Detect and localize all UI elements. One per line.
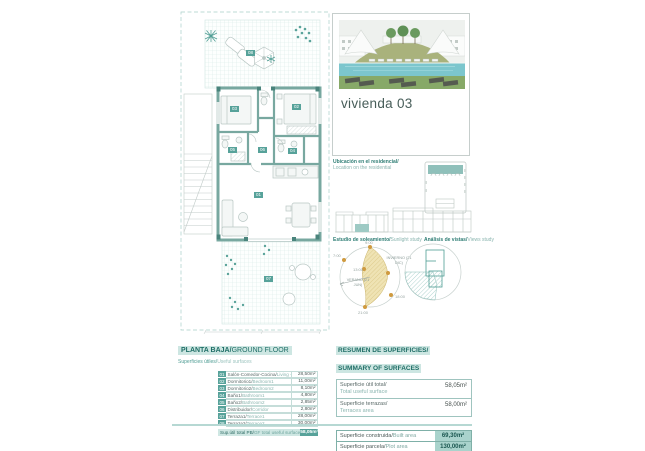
terrace1-area (222, 240, 320, 324)
table-row: 01 Salón-Comedor-Cocina/Living - Kitchen… (218, 371, 318, 378)
room-label-en: Bedroom2 (253, 386, 274, 391)
views-diagram (404, 241, 464, 305)
unit-location-highlight (428, 165, 463, 174)
sun-path-drawing (332, 240, 412, 320)
room-label-es: Dormitorio1/ (228, 379, 253, 384)
room-chip-terrace2: 08 (246, 50, 255, 56)
room-areas-table: 01 Salón-Comedor-Cocina/Living - Kitchen… (218, 371, 318, 436)
summary-total-row: Superficie parcela/Plot area 130,00m² (337, 441, 471, 451)
room-chip-bath2: 05 (228, 147, 237, 153)
residential-render-image (339, 20, 465, 89)
total-label-es: Sup.útil total PB/ (220, 430, 254, 435)
wc-fixtures-icon (261, 93, 268, 105)
hour-label: 13:00 (353, 267, 363, 272)
room-label-en: Living - Kitchen (277, 372, 292, 377)
views-caption-en: Views study (467, 237, 494, 243)
room-area-value: 2,80m² (292, 406, 318, 413)
ground-floor-title: PLANTA BAJA/GROUND FLOOR (178, 346, 292, 355)
location-note: Ubicación en el residencial/ Location on… (333, 159, 428, 171)
total-row-label-en: Built area (393, 433, 416, 439)
room-chip-bedroom2: 03 (230, 106, 239, 112)
summary-row: Superficie útil total/ Total useful surf… (337, 380, 471, 398)
room-chip-corridor: 06 (258, 147, 267, 153)
room-number-badge: 05 (218, 399, 226, 406)
ground-floor-title-en: GROUND FLOOR (232, 347, 289, 354)
stairs (184, 94, 212, 234)
summary-row: Superficie terrazas/ Terraces area 58,00… (337, 398, 471, 416)
room-area-value: 11,00m² (292, 378, 318, 385)
room-label-en: Bathroom2 (242, 400, 264, 405)
total-row-label-en: Plot area (386, 444, 408, 450)
dwelling-title: vivienda 03 (341, 96, 413, 111)
room-chip-terrace1: 07 (264, 276, 273, 282)
ground-floor-subtitle-en: Useful surfaces (217, 359, 251, 365)
sunlight-diagram: 7:00 9:00 13:00 18:00 21:00 VERANO (21 J… (332, 240, 412, 320)
kitchen-counter-icon (273, 166, 318, 178)
summary-totals-box: Superficie construida/Built area 69,30m²… (336, 430, 472, 451)
ground-floor-table: PLANTA BAJA/GROUND FLOOR Superficies úti… (178, 339, 320, 436)
table-row: 04 Baño1/Bathroom1 4,80m² (218, 392, 318, 399)
trees (386, 26, 420, 45)
room-area-value: 28,00m² (292, 413, 318, 420)
table-row: 06 Distribuidor/Corridor 2,80m² (218, 406, 318, 413)
room-label-es: Terraza1/ (228, 414, 247, 419)
table-row: 05 Baño2/Bathroom2 2,85m² (218, 399, 318, 406)
hour-label: 21:00 (358, 310, 368, 315)
room-label-en: Corridor (252, 407, 269, 412)
room-label-en: Terrace1 (247, 414, 265, 419)
floor-plan: 08 03 02 05 06 04 01 07 (172, 6, 334, 336)
ground-floor-title-es: PLANTA BAJA/ (181, 347, 232, 354)
summary-value: 58,05m² (445, 383, 467, 389)
sun-path-band (362, 247, 387, 307)
wardrobe-icon (287, 126, 316, 134)
bottom-divider (172, 424, 472, 426)
room-area-value: 2,85m² (292, 399, 318, 406)
room-label-es: Dormitorio2/ (228, 386, 253, 391)
pool (339, 64, 465, 77)
summary-total-row: Superficie construida/Built area 69,30m² (337, 431, 471, 441)
table-row: 03 Dormitorio2/Bedroom2 8,10m² (218, 385, 318, 392)
total-row-label-es: Superficie construida/ (340, 433, 393, 439)
brochure-page: 08 03 02 05 06 04 01 07 (0, 0, 645, 451)
room-chip-bedroom1: 02 (292, 104, 301, 110)
unit-elevation-highlight (355, 224, 369, 232)
table-row: 07 Terraza1/Terrace1 28,00m² (218, 413, 318, 420)
hour-label: 7:00 (333, 253, 341, 258)
ground-floor-subtitle: Superficies útiles/Useful surfaces (178, 359, 320, 365)
elevation-drawing (333, 202, 472, 234)
ground-floor-total-row: Sup.útil total PB/GF total useful surfac… (218, 429, 318, 437)
summary-title-en: SUMMARY OF SURFACES (336, 364, 421, 373)
hero-card: vivienda 03 (332, 13, 470, 156)
room-label-en: Bathroom1 (242, 393, 264, 398)
total-label-en: GF total useful surface (254, 430, 300, 435)
summary-value: 58,00m² (445, 402, 467, 408)
room-chip-living: 01 (254, 192, 263, 198)
room-label-es: Baño2/ (228, 400, 243, 405)
summary-title-es: RESUMEN DE SUPERFICIES/ (336, 346, 430, 355)
plot-area-value: 130,00m² (435, 442, 471, 451)
room-label-es: Distribuidor/ (228, 407, 253, 412)
room-area-value: 4,80m² (292, 392, 318, 399)
room-number-badge: 06 (218, 406, 226, 413)
room-number-badge: 02 (218, 378, 226, 385)
ground-floor-subtitle-es: Superficies útiles/ (178, 359, 217, 365)
hour-label: 9:00 (365, 240, 373, 245)
location-note-en: Location on the residential (333, 165, 428, 171)
table-row: 02 Dormitorio1/Bedroom1 11,00m² (218, 378, 318, 385)
unit-outline (426, 250, 444, 287)
room-label-en: Bedroom1 (253, 379, 274, 384)
room-number-badge: 04 (218, 392, 226, 399)
dimension-line (204, 330, 321, 334)
summary-label-en: Total useful surface (340, 389, 468, 396)
room-label-es: Baño1/ (228, 393, 243, 398)
room-area-value: 8,10m² (292, 385, 318, 392)
room-number-badge: 01 (218, 371, 226, 378)
coffee-table-icon (239, 213, 248, 222)
summer-label: VERANO (21 JUN) (345, 278, 371, 287)
total-useful-surface-value: 58,05m² (300, 429, 318, 437)
total-row-label-es: Superficie parcela/ (340, 444, 386, 450)
built-area-value: 69,30m² (435, 431, 471, 441)
summary-title: RESUMEN DE SUPERFICIES/ SUMMARY OF SURFA… (336, 339, 472, 375)
room-number-badge: 07 (218, 413, 226, 420)
summary-table: RESUMEN DE SUPERFICIES/ SUMMARY OF SURFA… (336, 339, 472, 451)
room-number-badge: 03 (218, 385, 226, 392)
room-label-es: Salón-Comedor-Cocina/ (228, 372, 277, 377)
room-chip-bath1: 04 (288, 148, 297, 154)
summary-main-box: Superficie útil total/ Total useful surf… (336, 379, 472, 417)
room-area-value: 28,50m² (292, 371, 318, 378)
summary-label-en: Terraces area (340, 408, 468, 415)
